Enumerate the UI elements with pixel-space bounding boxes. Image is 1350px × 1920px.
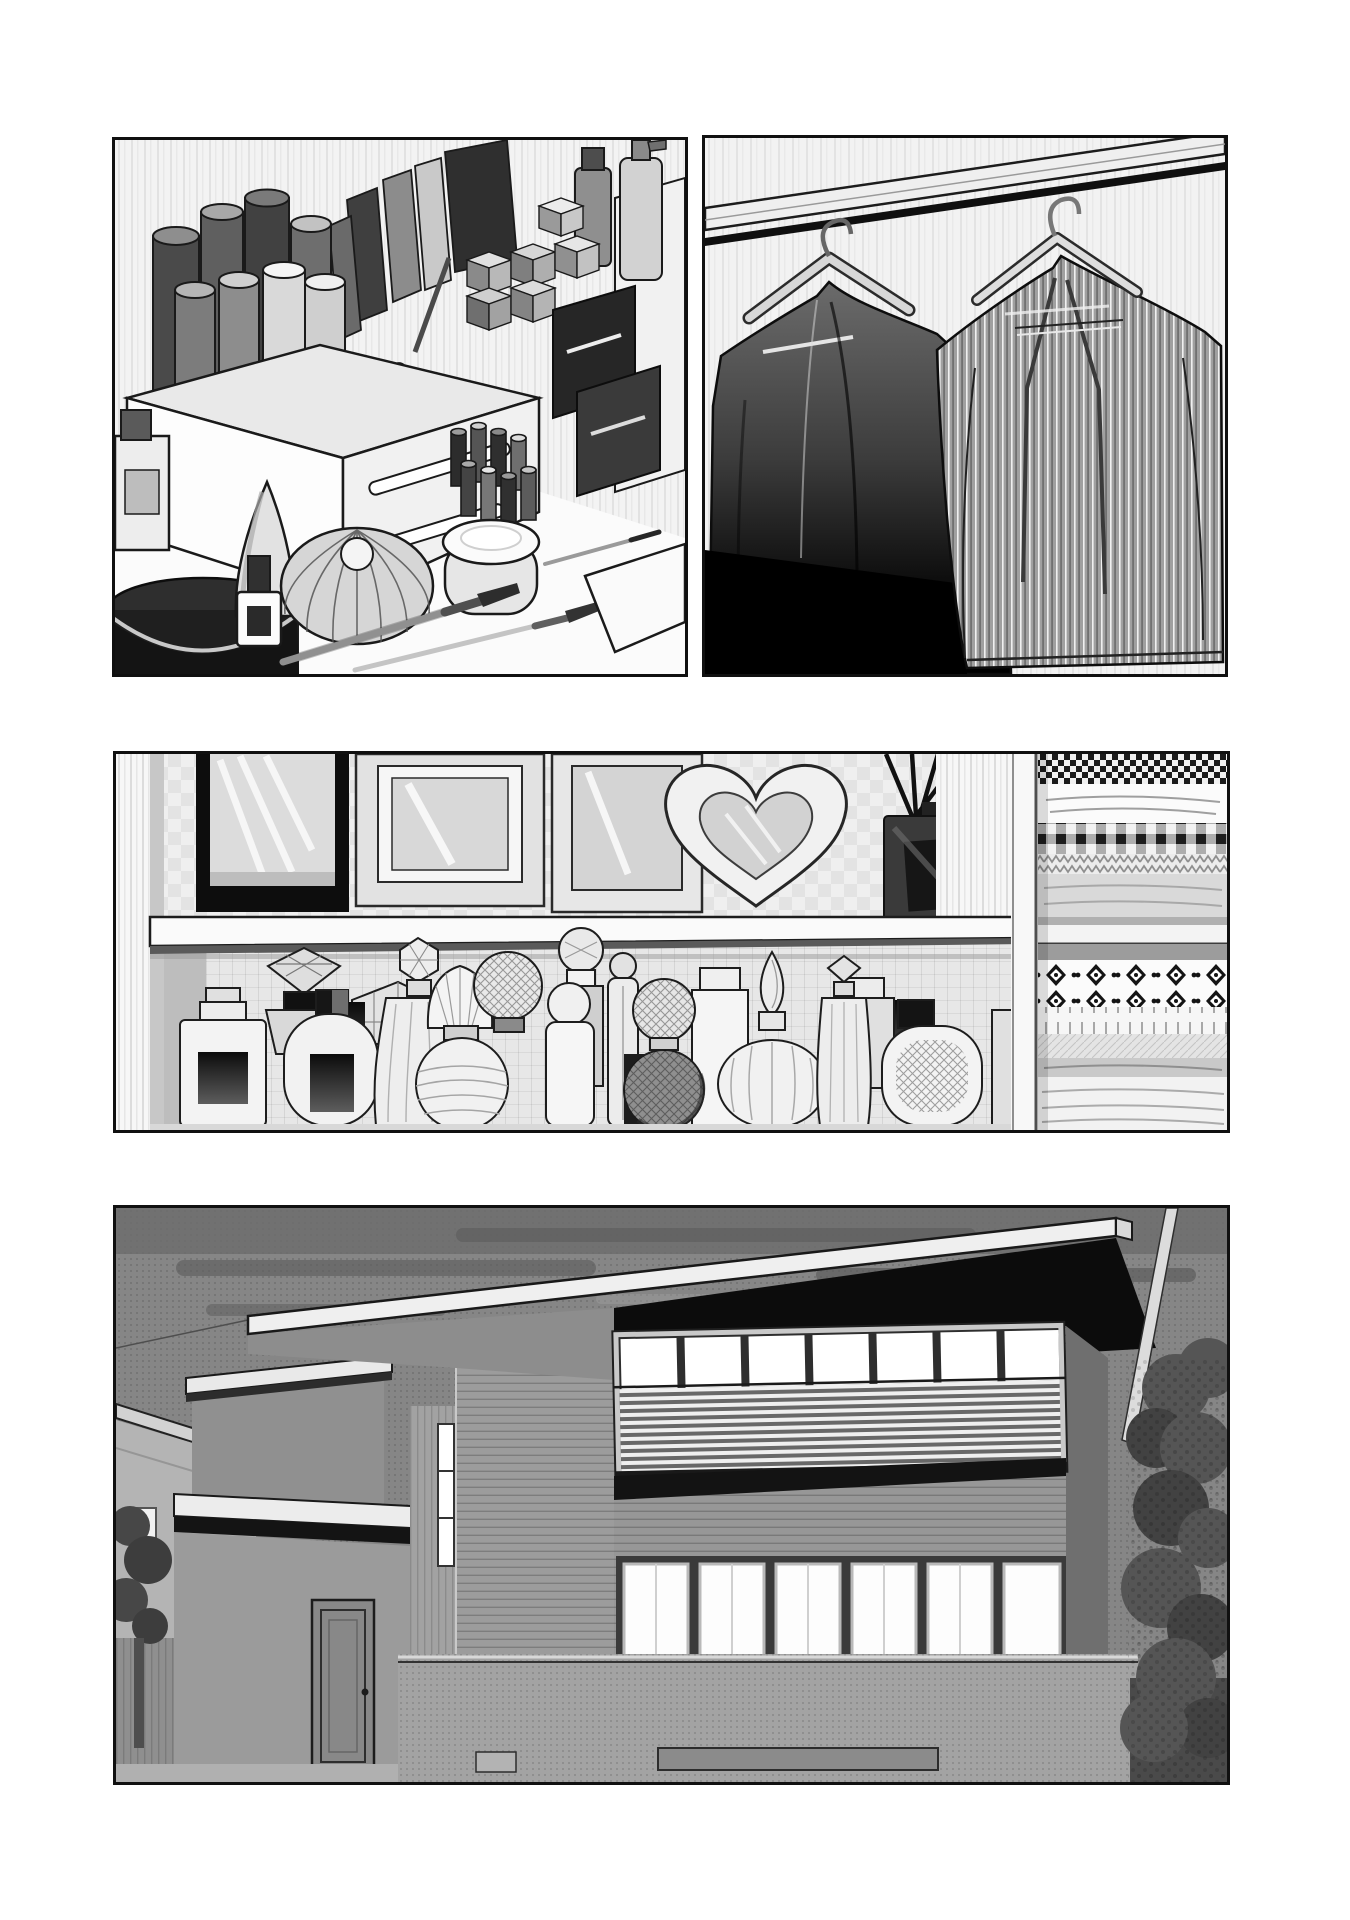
window-pillar [116, 754, 150, 1130]
panel-house-exterior [113, 1205, 1230, 1785]
linen-closet [1038, 754, 1227, 1130]
shelf-art [116, 754, 1227, 1130]
slit-window [438, 1424, 454, 1566]
upstairs-windows [612, 1322, 1067, 1481]
panel-hanging-coats [702, 135, 1228, 677]
planter [658, 1748, 938, 1770]
balcony-railing [620, 1380, 1062, 1473]
utility-box [476, 1752, 516, 1772]
cosmetics-art [115, 140, 685, 674]
folded-linens-top [1038, 754, 1227, 917]
closet-divider [1011, 754, 1038, 1130]
far-fence-texture [116, 1638, 176, 1782]
front-door [312, 1600, 374, 1772]
lipstick-cluster [451, 423, 536, 527]
pump-bottle [620, 140, 666, 280]
panel-vanity-shelf-closet [113, 751, 1230, 1133]
picture-frame [356, 754, 544, 906]
right-tree [1120, 1338, 1227, 1782]
manga-page [0, 0, 1350, 1920]
ground [116, 1764, 398, 1782]
pinstripe-coat [937, 256, 1223, 668]
panel-cosmetics-organizer [112, 137, 688, 677]
folded-linens-bottom [1038, 944, 1227, 1130]
coats-art [705, 138, 1225, 674]
curtain-strip [936, 754, 1011, 924]
wall-mirror [196, 754, 349, 912]
ball-neck-bottle [546, 983, 594, 1126]
door-handle-icon [362, 1689, 369, 1696]
house-art [116, 1208, 1227, 1782]
floor-strip [150, 1124, 1031, 1130]
closet-shelf-board [1038, 917, 1227, 944]
